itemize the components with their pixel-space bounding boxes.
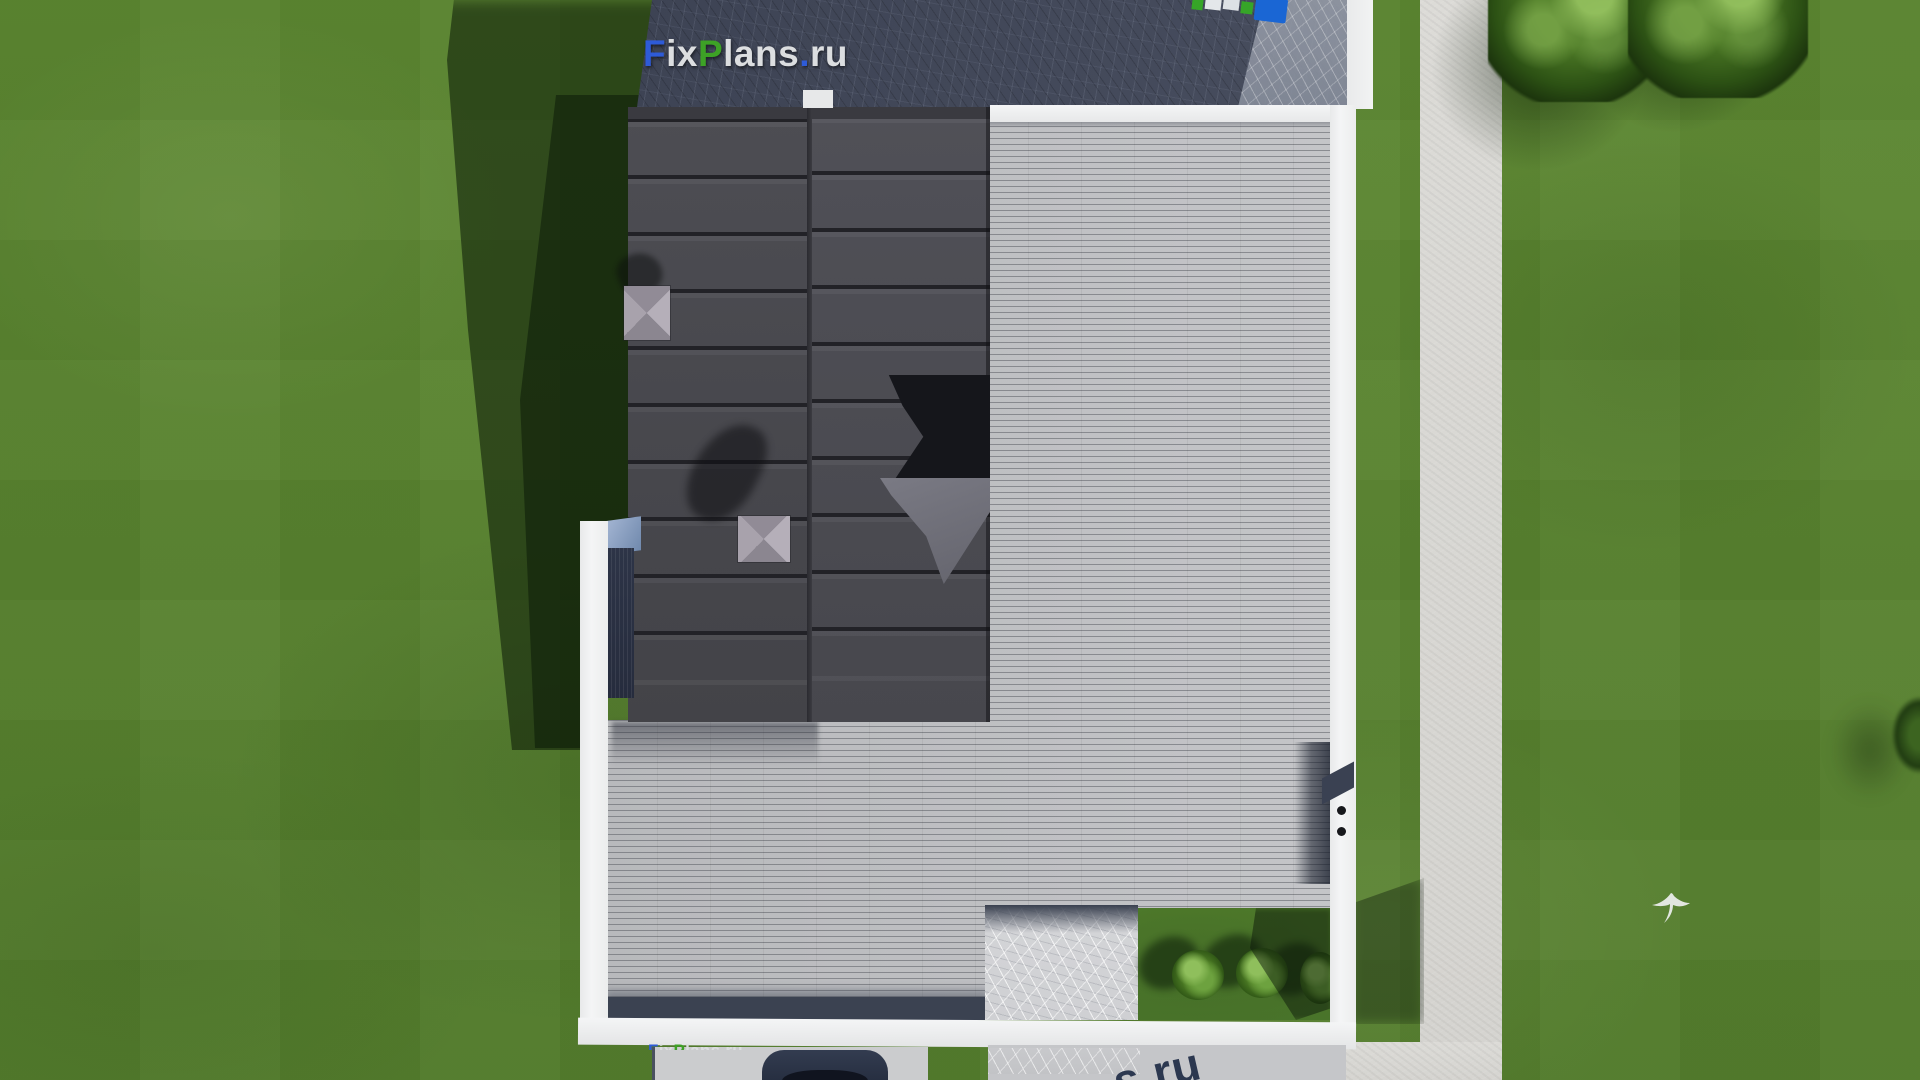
watermark-small-ru: ru (725, 1041, 743, 1050)
car-windshield (782, 1070, 868, 1080)
watermark-small-f: F (648, 1041, 659, 1050)
watermark-part-ru: ru (810, 33, 848, 74)
vehicle-cargo-green-2 (1240, 1, 1253, 14)
wall-fixture-dot-2 (1337, 827, 1346, 836)
watermark-part-dot: . (799, 33, 810, 74)
glass-curtain-wall (607, 548, 634, 698)
tree-2 (1628, 0, 1808, 98)
wall-fixture-dot-1 (1337, 806, 1346, 815)
watermark-small-text: FixPlans.ru (648, 1041, 760, 1050)
vehicle-cargo-green-1 (1191, 0, 1203, 10)
roof-ridge-seam (807, 107, 812, 722)
roof-vent (803, 90, 833, 108)
deck-edge-shadow-band (604, 997, 990, 1020)
parapet-shadow-on-deck (1294, 742, 1332, 884)
dark-flat-roof (628, 107, 990, 722)
stone-patio-shadow (985, 905, 1138, 933)
parapet-left (580, 521, 608, 1042)
shrub-1 (1172, 950, 1224, 1000)
watermark-small-clipped: FixPlans.ru (648, 1041, 760, 1050)
parked-car (762, 1050, 888, 1080)
roof-panel-section-left (628, 107, 810, 722)
roof-shadow-on-deck (612, 722, 818, 766)
parapet-right (1330, 105, 1356, 1042)
vehicle-cargo-white-1 (1205, 0, 1222, 11)
watermark-small-lans: lans (685, 1041, 720, 1050)
watermark-part-p: P (698, 33, 723, 74)
watermark-logo: FixPlans.ru (643, 33, 848, 75)
vehicle-cab-blue (1254, 0, 1289, 24)
chimney-2 (738, 516, 790, 562)
bird-icon (1650, 890, 1692, 926)
parapet-top (990, 105, 1356, 122)
parapet-top-shadow-line (990, 122, 1356, 128)
watermark-small-ix: ix (659, 1041, 674, 1050)
chimney-1 (624, 286, 670, 340)
watermark-part-f: F (643, 33, 666, 74)
edge-foliage (1884, 686, 1920, 784)
driveway-curb (1347, 0, 1373, 109)
aerial-house-render: s.ru FixPlans.ru FixPlans.ru (0, 0, 1920, 1080)
watermark-small-p: P (673, 1041, 685, 1050)
vehicle-cargo-white-2 (1223, 0, 1240, 11)
watermark-part-ix: ix (666, 33, 698, 74)
watermark-part-lans: lans (723, 33, 799, 74)
